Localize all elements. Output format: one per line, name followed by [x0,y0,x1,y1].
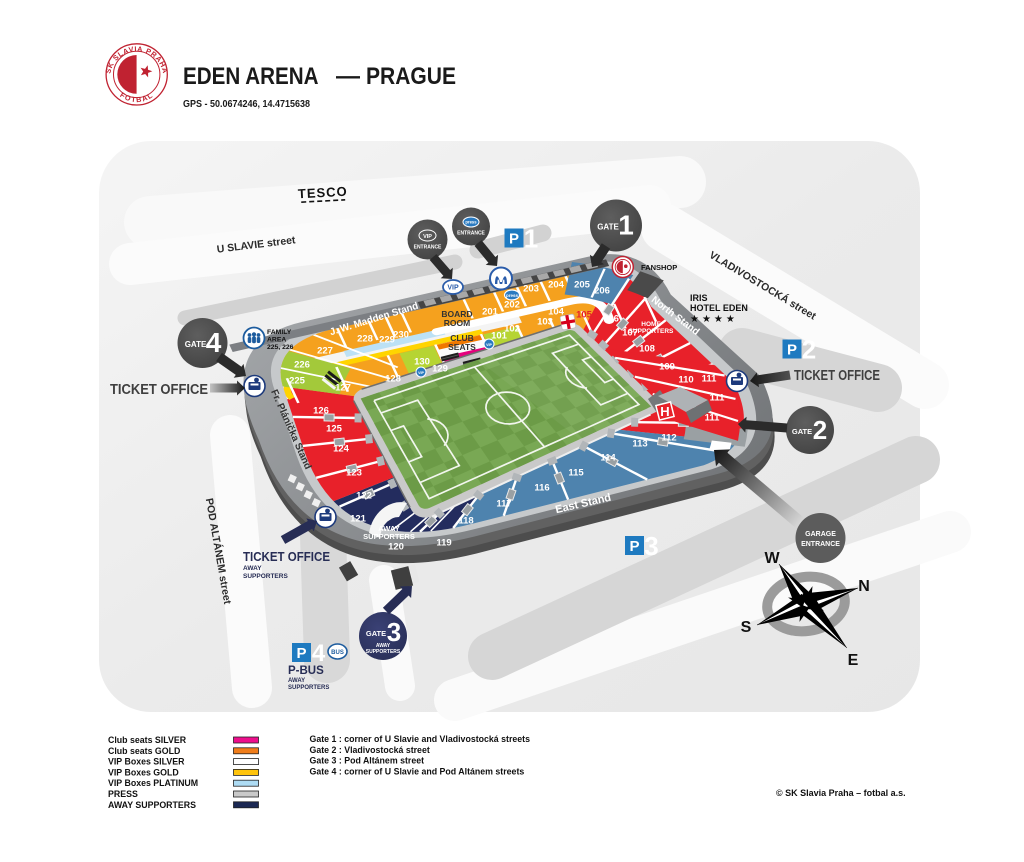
svg-text:120: 120 [388,542,404,553]
svg-text:2: 2 [813,415,827,445]
svg-text:P: P [296,645,306,662]
svg-text:ENTRANCE: ENTRANCE [457,231,485,237]
svg-text:205: 205 [574,280,591,291]
svg-text:104: 104 [548,307,565,318]
svg-text:111: 111 [705,413,721,424]
svg-text:227: 227 [317,346,333,357]
svg-text:GATE: GATE [597,223,619,232]
svg-text:PRESS: PRESS [108,789,138,799]
svg-text:111: 111 [710,393,726,404]
svg-text:VIP Boxes PLATINUM: VIP Boxes PLATINUM [108,778,198,788]
svg-text:130: 130 [414,357,430,368]
svg-text:SUPPORTERS: SUPPORTERS [243,573,288,580]
svg-text:GATE: GATE [792,427,812,436]
svg-text:202: 202 [504,300,520,311]
svg-text:ROOM: ROOM [444,318,470,328]
svg-text:SUPPORTERS: SUPPORTERS [629,328,674,335]
svg-text:ENTRANCE: ENTRANCE [414,245,442,251]
svg-text:VIP: VIP [423,234,432,240]
svg-text:TICKET OFFICE: TICKET OFFICE [794,368,880,384]
svg-text:102: 102 [504,324,520,335]
svg-text:106: 106 [603,314,619,325]
svg-text:SUPPORTERS: SUPPORTERS [366,649,401,655]
svg-text:P: P [629,538,639,555]
svg-text:★★★★: ★★★★ [690,314,738,325]
svg-text:203: 203 [523,284,539,295]
svg-text:225: 225 [289,376,306,387]
svg-text:1: 1 [618,210,634,241]
svg-text:SUPPORTERS: SUPPORTERS [288,685,329,691]
svg-text:P-BUS: P-BUS [288,665,324,677]
svg-text:VIP: VIP [447,285,459,292]
svg-text:GARAGE: GARAGE [805,531,836,538]
svg-text:GATE: GATE [366,629,386,638]
svg-text:Gate 1 : corner of U Slavie an: Gate 1 : corner of U Slavie and Vladivos… [310,734,531,744]
svg-text:1: 1 [524,223,538,253]
svg-text:VIP Boxes SILVER: VIP Boxes SILVER [108,757,185,767]
svg-text:110: 110 [678,375,693,386]
svg-text:AWAY: AWAY [243,565,262,572]
svg-text:TESCO: TESCO [298,184,349,202]
svg-text:225, 226: 225, 226 [267,344,294,351]
svg-text:Club seats SILVER: Club seats SILVER [108,735,187,745]
svg-text:P: P [509,231,519,248]
svg-text:123: 123 [346,468,362,479]
svg-text:Gate 2 : Vladivostocká street: Gate 2 : Vladivostocká street [310,745,430,755]
svg-text:GPS - 50.0674246, 14.4715638: GPS - 50.0674246, 14.4715638 [183,98,310,110]
svg-text:P: P [787,342,797,359]
svg-text:2: 2 [802,334,816,364]
svg-text:105: 105 [576,310,593,321]
svg-text:206: 206 [594,286,610,297]
svg-text:press: press [506,293,519,298]
svg-text:111: 111 [702,374,718,385]
svg-text:228: 228 [357,334,373,345]
svg-text:TICKET OFFICE: TICKET OFFICE [110,382,208,398]
svg-text:4: 4 [312,640,326,667]
svg-text:109: 109 [659,362,675,373]
svg-text:Club seats GOLD: Club seats GOLD [108,746,180,756]
svg-text:125: 125 [326,424,343,435]
svg-text:S: S [741,619,752,636]
svg-text:VIP: VIP [486,343,492,347]
svg-text:116: 116 [534,483,549,494]
svg-text:113: 113 [632,439,647,450]
svg-text:201: 201 [482,307,499,318]
svg-text:127: 127 [335,383,351,394]
svg-text:GATE: GATE [185,340,207,349]
svg-text:3: 3 [644,531,658,561]
svg-text:HOME: HOME [641,321,661,328]
svg-text:115: 115 [568,468,584,479]
svg-text:FAMILY: FAMILY [267,329,292,336]
svg-text:AREA: AREA [267,337,286,344]
svg-text:122: 122 [356,491,372,502]
svg-text:W: W [764,550,780,567]
svg-text:BUS: BUS [331,650,344,656]
svg-text:TICKET OFFICE: TICKET OFFICE [243,549,330,564]
svg-text:112: 112 [661,433,676,444]
svg-text:ENTRANCE: ENTRANCE [801,541,840,548]
svg-text:118: 118 [458,516,473,527]
svg-text:SUPPORTERS: SUPPORTERS [363,532,415,541]
svg-text:119: 119 [436,538,451,549]
svg-text:128: 128 [385,374,401,385]
svg-text:124: 124 [333,444,350,455]
svg-text:108: 108 [639,344,655,355]
svg-text:114: 114 [600,453,616,464]
svg-text:IRIS: IRIS [690,293,708,303]
svg-text:129: 129 [432,364,448,375]
svg-text:SEATS: SEATS [448,342,476,352]
svg-text:126: 126 [313,406,329,417]
svg-text:VIP Boxes GOLD: VIP Boxes GOLD [108,767,179,777]
svg-text:204: 204 [548,280,565,291]
svg-text:AWAY SUPPORTERS: AWAY SUPPORTERS [108,800,196,810]
svg-text:117: 117 [496,499,511,510]
svg-text:© SK Slavia Praha – fotbal a.s: © SK Slavia Praha – fotbal a.s. [776,788,906,798]
svg-text:121: 121 [350,514,367,525]
svg-text:Gate 3 : Pod Altánem street: Gate 3 : Pod Altánem street [310,756,425,766]
svg-text:FANSHOP: FANSHOP [641,263,677,272]
svg-text:AWAY: AWAY [288,678,305,684]
svg-text:E: E [848,652,859,669]
svg-text:230: 230 [393,330,409,341]
svg-text:HOTEL EDEN: HOTEL EDEN [690,303,748,313]
svg-text:press: press [465,220,477,225]
svg-text:226: 226 [294,360,310,371]
svg-text:H: H [660,404,669,419]
svg-text:VIP: VIP [418,371,424,375]
svg-text:N: N [858,578,870,595]
svg-text:4: 4 [206,327,222,358]
svg-text:103: 103 [537,317,553,328]
svg-text:Gate 4 : corner of U Slavie an: Gate 4 : corner of U Slavie and Pod Altá… [310,766,525,776]
